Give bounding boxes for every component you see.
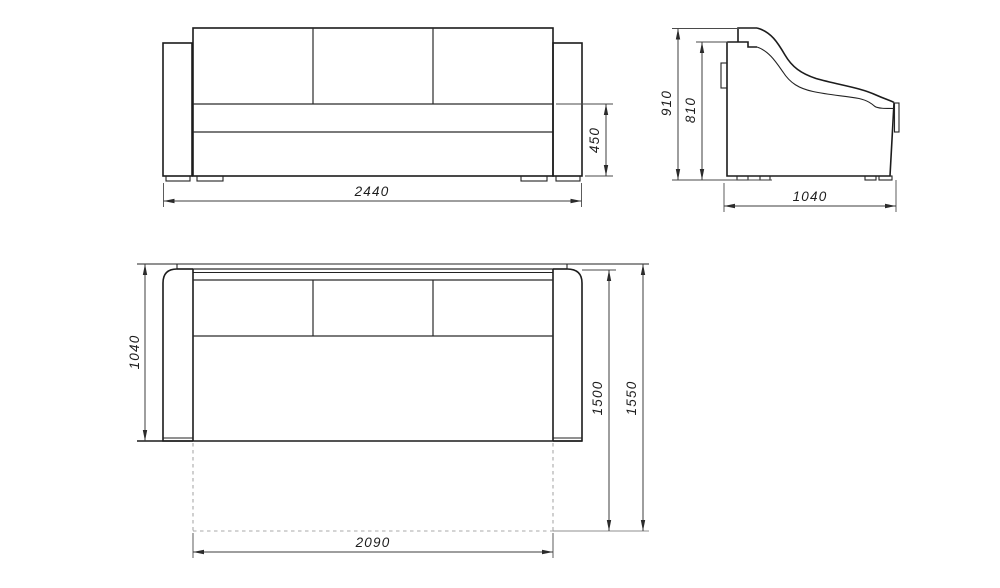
plan-armrest-left [163,269,193,441]
side-body-outline [727,42,894,176]
side-front-tab [895,103,900,132]
front-sofa-body [193,28,553,176]
side-armrest-inner-curve [757,47,894,109]
sofa-technical-drawing: 2440 450 910 810 [0,0,1000,588]
front-armrest-right [553,43,582,176]
dim-plan-depth-value: 1040 [127,335,142,370]
dim-plan-sleeping-width-value: 2090 [355,535,391,550]
side-back-tab [721,63,727,88]
dim-front-width-value: 2440 [354,184,390,199]
front-armrest-left [163,43,192,176]
dim-side-depth-value: 1040 [793,189,828,204]
dim-plan-bed-value: 1500 [590,381,605,416]
drawing-sheet: 2440 450 910 810 [0,0,1000,588]
dim-front-seat-height-value: 450 [587,127,602,153]
dim-side-back-height-value: 810 [683,97,698,123]
dim-side-height-value: 910 [659,90,674,116]
front-view: 2440 450 [163,28,613,207]
plan-view: 1040 1500 1550 2090 [127,264,649,558]
dim-plan-bed-total-value: 1550 [624,381,639,416]
side-back-cap [738,28,757,42]
side-back-top-edge [727,42,757,47]
plan-armrest-right [553,269,582,441]
side-view: 910 810 1040 [659,28,899,212]
